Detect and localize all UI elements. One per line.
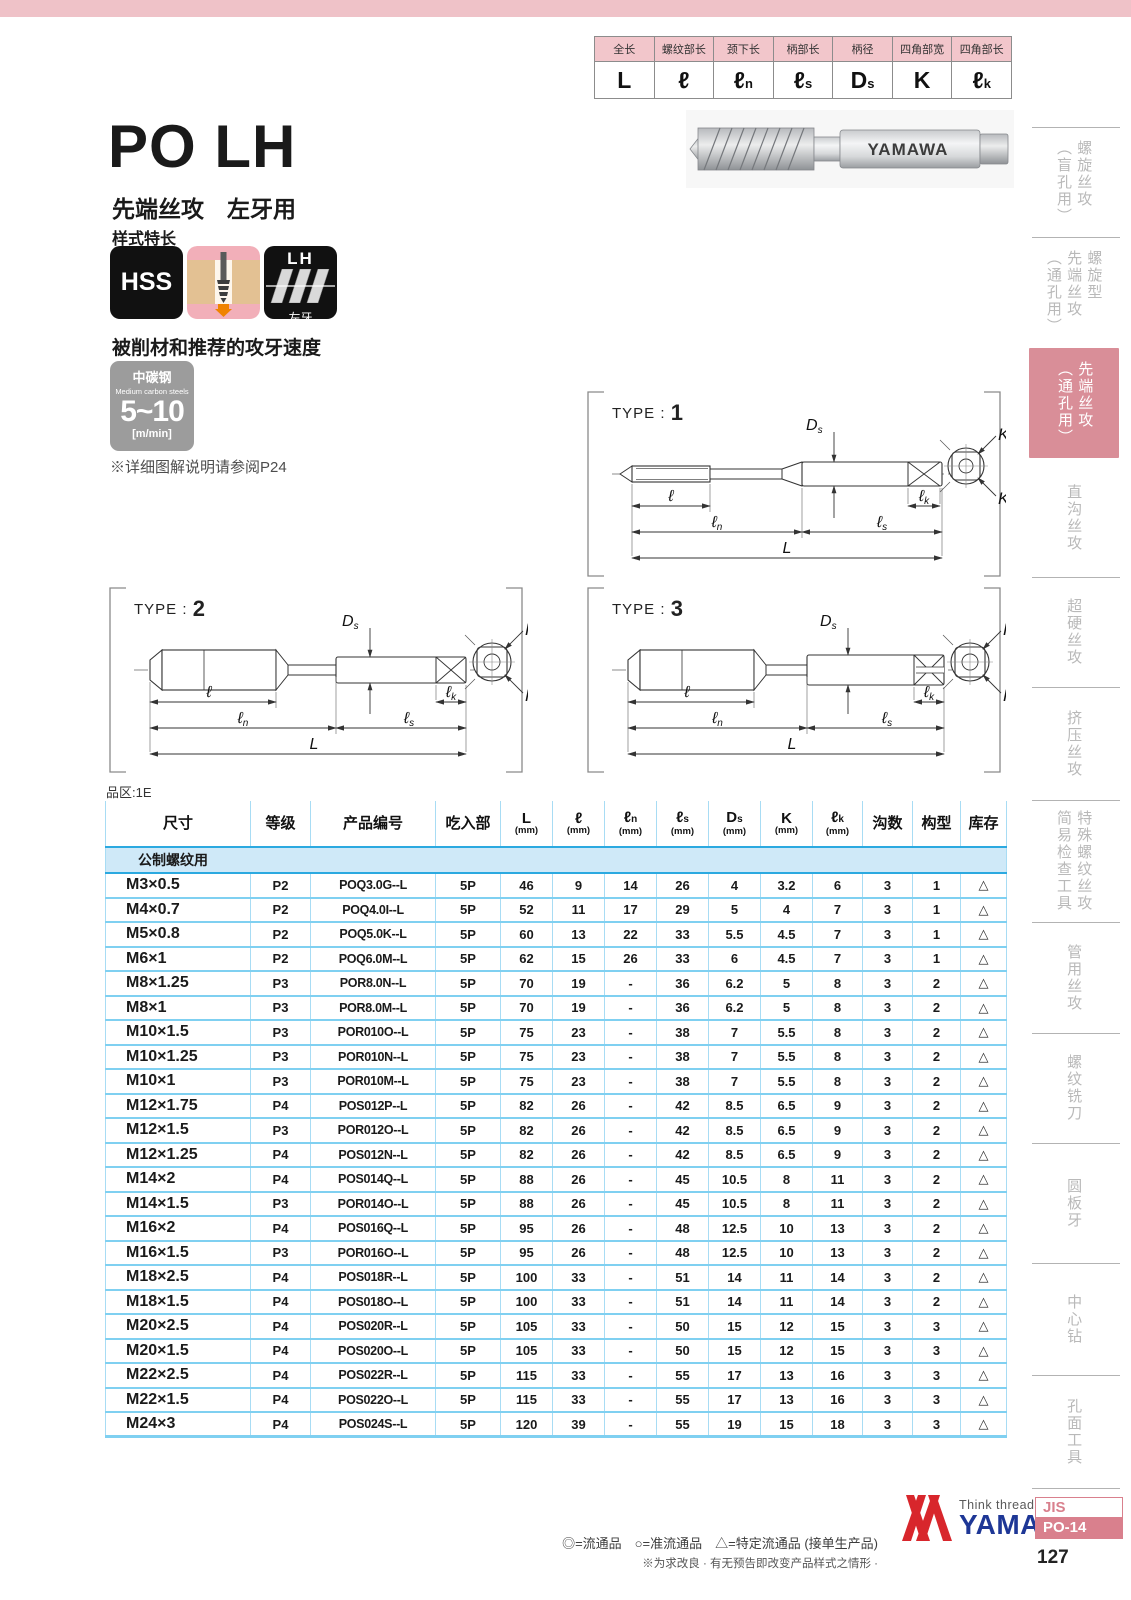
chamfer-cell: 5P: [436, 1290, 501, 1315]
symbol-col-header: 四角部宽: [892, 37, 952, 62]
type-cell: 2: [913, 996, 961, 1021]
column-header: 产品编号: [311, 801, 436, 847]
type-cell: 2: [913, 1069, 961, 1094]
l-cell: 88: [501, 1192, 553, 1217]
table-row: M8×1.25P3POR8.0N--L5P7019-366.25832△: [106, 971, 1007, 996]
product-code-cell: POQ5.0K--L: [311, 922, 436, 947]
table-row: M10×1.5P3POR010O--L5P7523-3875.5832△: [106, 1020, 1007, 1045]
hss-badge-label: HSS: [121, 268, 172, 297]
svg-text:ℓk: ℓk: [923, 684, 935, 703]
chamfer-cell: 5P: [436, 898, 501, 923]
product-code-cell: POS016Q--L: [311, 1216, 436, 1241]
symbol-cell: L: [595, 62, 655, 99]
chamfer-cell: 5P: [436, 1143, 501, 1168]
grade-cell: P2: [251, 898, 311, 923]
shank-len-cell: 48: [657, 1241, 709, 1266]
product-code-cell: POR8.0N--L: [311, 971, 436, 996]
table-row: M3×0.5P2POQ3.0G--L5P469142643.2631△: [106, 873, 1007, 898]
square-len-cell: 7: [813, 922, 863, 947]
column-header: L(mm): [501, 801, 553, 847]
svg-text:ℓk: ℓk: [445, 684, 457, 703]
square-len-cell: 16: [813, 1388, 863, 1413]
symbol-col-header: 全长: [595, 37, 655, 62]
dimension-table: 尺寸等级产品编号吃入部L(mm)ℓ(mm)ℓn(mm)ℓs(mm)Ds(mm)K…: [105, 801, 1007, 1438]
l-cell: 75: [501, 1045, 553, 1070]
neck-len-cell: -: [605, 1118, 657, 1143]
square-len-cell: 9: [813, 1094, 863, 1119]
thread-len-cell: 26: [553, 1143, 605, 1168]
footer-legend: ◎=流通品 ○=准流通品 △=特定流通品 (接单生产品) ※为求改良 · 有无预…: [562, 1533, 878, 1571]
flutes-cell: 3: [863, 873, 913, 898]
square-width-cell: 6.5: [761, 1094, 813, 1119]
sidebar-tab-label: 挤压丝攻: [1063, 710, 1083, 778]
sidebar-tab[interactable]: 圆板牙: [1015, 1143, 1131, 1263]
square-len-cell: 14: [813, 1290, 863, 1315]
stock-cell: △: [961, 1388, 1007, 1413]
type2-diagram: TYPE : 2DsℓℓkℓnℓsLKK: [104, 582, 528, 783]
type-cell: 3: [913, 1314, 961, 1339]
flutes-cell: 3: [863, 1216, 913, 1241]
neck-len-cell: -: [605, 996, 657, 1021]
type1-diagram: TYPE : 1DsℓℓkℓnℓsLKK: [582, 386, 1006, 587]
section-row: 公制螺纹用: [106, 847, 1007, 873]
shank-dia-cell: 6: [709, 947, 761, 972]
product-code-cell: POS014Q--L: [311, 1167, 436, 1192]
zone-label: 品区:1E: [106, 782, 152, 801]
square-width-cell: 13: [761, 1363, 813, 1388]
square-width-cell: 4.5: [761, 947, 813, 972]
square-len-cell: 8: [813, 996, 863, 1021]
shank-len-cell: 42: [657, 1118, 709, 1143]
shank-dia-cell: 12.5: [709, 1216, 761, 1241]
table-row: M18×2.5P4POS018R--L5P10033-5114111432△: [106, 1265, 1007, 1290]
section-label: 公制螺纹用: [106, 847, 1007, 873]
grade-cell: P3: [251, 971, 311, 996]
grade-cell: P3: [251, 1118, 311, 1143]
neck-len-cell: -: [605, 1094, 657, 1119]
type-cell: 2: [913, 971, 961, 996]
size-cell: M10×1.5: [106, 1020, 251, 1045]
sidebar-tab[interactable]: 挤压丝攻: [1015, 687, 1131, 800]
chamfer-cell: 5P: [436, 1020, 501, 1045]
shank-dia-cell: 12.5: [709, 1241, 761, 1266]
shank-len-cell: 38: [657, 1020, 709, 1045]
table-row: M14×2P4POS014Q--L5P8826-4510.581132△: [106, 1167, 1007, 1192]
square-len-cell: 9: [813, 1118, 863, 1143]
flutes-cell: 3: [863, 1241, 913, 1266]
size-cell: M10×1.25: [106, 1045, 251, 1070]
grade-cell: P4: [251, 1363, 311, 1388]
material-name-cn: 中碳钢: [110, 367, 194, 386]
speed-range: 5~10: [110, 396, 194, 428]
neck-len-cell: -: [605, 1265, 657, 1290]
size-cell: M6×1: [106, 947, 251, 972]
sidebar-tab[interactable]: 孔面工具: [1015, 1375, 1131, 1488]
sidebar-tab[interactable]: 先端丝攻（通孔用）: [1029, 348, 1119, 458]
size-cell: M20×1.5: [106, 1339, 251, 1364]
type-cell: 2: [913, 1290, 961, 1315]
chamfer-cell: 5P: [436, 1388, 501, 1413]
grade-cell: P3: [251, 1241, 311, 1266]
grade-cell: P4: [251, 1314, 311, 1339]
table-row: M12×1.5P3POR012O--L5P8226-428.56.5932△: [106, 1118, 1007, 1143]
product-code-cell: POS024S--L: [311, 1412, 436, 1437]
column-header: 库存: [961, 801, 1007, 847]
product-code-cell: POS012P--L: [311, 1094, 436, 1119]
shank-len-cell: 48: [657, 1216, 709, 1241]
yamawa-logo-mark: [901, 1492, 953, 1544]
svg-text:ℓn: ℓn: [711, 514, 723, 533]
sidebar-tab-label: 管用丝攻: [1063, 944, 1083, 1012]
stock-cell: △: [961, 1290, 1007, 1315]
shank-len-cell: 33: [657, 947, 709, 972]
product-code-cell: POS022R--L: [311, 1363, 436, 1388]
sidebar-tab-label: 先端丝攻（通孔用）: [1054, 361, 1095, 446]
product-code-cell: POS012N--L: [311, 1143, 436, 1168]
shank-dia-cell: 17: [709, 1388, 761, 1413]
chamfer-cell: 5P: [436, 922, 501, 947]
symbol-col-header: 柄径: [833, 37, 893, 62]
l-cell: 52: [501, 898, 553, 923]
square-width-cell: 5: [761, 971, 813, 996]
disclaimer-note: ※为求改良 · 有无预告即改变产品样式之情形 ·: [562, 1555, 878, 1571]
neck-len-cell: -: [605, 1216, 657, 1241]
left-hand-badge: LH 左牙: [264, 246, 337, 319]
flutes-cell: 3: [863, 996, 913, 1021]
type-cell: 3: [913, 1412, 961, 1437]
size-cell: M16×1.5: [106, 1241, 251, 1266]
svg-text:K: K: [998, 489, 1006, 508]
chamfer-cell: 5P: [436, 1069, 501, 1094]
sidebar-tab-label: 超硬丝攻: [1063, 598, 1083, 666]
reference-note: ※详细图解说明请参阅P24: [110, 456, 287, 477]
shank-dia-cell: 10.5: [709, 1192, 761, 1217]
symbol-cell: ℓs: [773, 62, 833, 99]
l-cell: 105: [501, 1339, 553, 1364]
neck-len-cell: -: [605, 1314, 657, 1339]
sidebar-tab[interactable]: 管用丝攻: [1015, 922, 1131, 1033]
type-cell: 2: [913, 1118, 961, 1143]
column-header: 尺寸: [106, 801, 251, 847]
symbol-col-header: 四角部长: [952, 37, 1012, 62]
tap-square-end: [980, 134, 1008, 164]
type-cell: 2: [913, 1216, 961, 1241]
thread-len-cell: 26: [553, 1192, 605, 1217]
thread-len-cell: 23: [553, 1020, 605, 1045]
sidebar-tab[interactable]: 超硬丝攻: [1015, 577, 1131, 687]
stock-cell: △: [961, 971, 1007, 996]
sidebar-tab[interactable]: 螺纹铣刀: [1015, 1033, 1131, 1143]
grade-cell: P3: [251, 1045, 311, 1070]
svg-text:TYPE : 1: TYPE : 1: [612, 400, 684, 425]
column-header: ℓs(mm): [657, 801, 709, 847]
neck-len-cell: -: [605, 1143, 657, 1168]
sidebar-divider: [1032, 1488, 1120, 1489]
chamfer-cell: 5P: [436, 1339, 501, 1364]
table-row: M10×1P3POR010M--L5P7523-3875.5832△: [106, 1069, 1007, 1094]
size-cell: M8×1: [106, 996, 251, 1021]
shank-len-cell: 36: [657, 971, 709, 996]
chamfer-cell: 5P: [436, 1241, 501, 1266]
column-header: 等级: [251, 801, 311, 847]
lh-badge-cn-label: 左牙: [264, 309, 337, 326]
shank-len-cell: 33: [657, 922, 709, 947]
left-hand-thread-graphic: [264, 269, 337, 303]
symbol-col-header: 柄部长: [773, 37, 833, 62]
sidebar-tab[interactable]: 螺旋型先端丝攻（通孔用）: [1015, 237, 1131, 348]
grade-cell: P3: [251, 1192, 311, 1217]
shank-dia-cell: 4: [709, 873, 761, 898]
hss-badge: HSS: [110, 246, 183, 319]
symbol-cell: ℓk: [952, 62, 1012, 99]
product-code-cell: POS022O--L: [311, 1388, 436, 1413]
flutes-cell: 3: [863, 947, 913, 972]
sidebar-tab-label: 圆板牙: [1063, 1178, 1083, 1229]
type-cell: 2: [913, 1265, 961, 1290]
grade-cell: P2: [251, 947, 311, 972]
chamfer-cell: 5P: [436, 1216, 501, 1241]
square-len-cell: 7: [813, 898, 863, 923]
flutes-cell: 3: [863, 1314, 913, 1339]
jis-label: JIS: [1036, 1498, 1122, 1517]
square-len-cell: 6: [813, 873, 863, 898]
flutes-cell: 3: [863, 1363, 913, 1388]
speed-unit: [m/min]: [110, 428, 194, 440]
shank-dia-cell: 7: [709, 1045, 761, 1070]
size-cell: M12×1.25: [106, 1143, 251, 1168]
size-cell: M14×1.5: [106, 1192, 251, 1217]
type-cell: 2: [913, 1143, 961, 1168]
shank-len-cell: 38: [657, 1069, 709, 1094]
symbol-col-header: 螺纹部长: [654, 37, 714, 62]
type-cell: 2: [913, 1045, 961, 1070]
grade-cell: P4: [251, 1388, 311, 1413]
symbol-reference-table: 全长螺纹部长颈下长柄部长柄径四角部宽四角部长 LℓℓnℓsDsKℓk: [594, 36, 1012, 99]
svg-text:ℓs: ℓs: [403, 710, 414, 729]
svg-text:ℓ: ℓ: [667, 488, 674, 505]
table-row: M22×2.5P4POS022R--L5P11533-5517131633△: [106, 1363, 1007, 1388]
product-code-cell: POS020R--L: [311, 1314, 436, 1339]
top-accent-bar: [0, 0, 1131, 17]
product-photo: YAMAWA: [686, 110, 1014, 193]
svg-text:ℓk: ℓk: [918, 488, 930, 507]
page-subtitle: 先端丝攻 左牙用: [112, 190, 296, 224]
sidebar-tab[interactable]: 直沟丝攻: [1015, 458, 1131, 577]
svg-text:ℓ: ℓ: [683, 684, 690, 701]
neck-len-cell: 22: [605, 922, 657, 947]
square-len-cell: 13: [813, 1241, 863, 1266]
lh-badge-label: LH: [264, 249, 337, 269]
shank-dia-cell: 14: [709, 1265, 761, 1290]
column-header: 吃入部: [436, 801, 501, 847]
svg-text:ℓn: ℓn: [237, 710, 249, 729]
type-cell: 1: [913, 947, 961, 972]
sidebar-tab[interactable]: 螺旋丝攻（盲孔用）: [1015, 127, 1131, 237]
thread-len-cell: 33: [553, 1363, 605, 1388]
square-width-cell: 11: [761, 1290, 813, 1315]
stock-cell: △: [961, 873, 1007, 898]
stock-cell: △: [961, 1339, 1007, 1364]
grade-cell: P4: [251, 1265, 311, 1290]
square-width-cell: 5.5: [761, 1069, 813, 1094]
column-header: ℓk(mm): [813, 801, 863, 847]
square-len-cell: 15: [813, 1314, 863, 1339]
size-cell: M24×3: [106, 1412, 251, 1437]
square-width-cell: 5: [761, 996, 813, 1021]
sidebar-tab-label: 螺旋型先端丝攻（通孔用）: [1043, 250, 1104, 335]
neck-len-cell: -: [605, 971, 657, 996]
sidebar-tab[interactable]: 特殊螺纹丝攻简易检查工具: [1015, 800, 1131, 922]
type-cell: 1: [913, 922, 961, 947]
flutes-cell: 3: [863, 922, 913, 947]
l-cell: 70: [501, 971, 553, 996]
chamfer-cell: 5P: [436, 996, 501, 1021]
jis-doc-code-box: JIS PO-14: [1035, 1497, 1123, 1539]
stock-cell: △: [961, 1167, 1007, 1192]
table-row: M6×1P2POQ6.0M--L5P6215263364.5731△: [106, 947, 1007, 972]
catalog-page: 全长螺纹部长颈下长柄部长柄径四角部宽四角部长 LℓℓnℓsDsKℓk: [0, 0, 1131, 1600]
square-len-cell: 11: [813, 1192, 863, 1217]
shank-len-cell: 50: [657, 1314, 709, 1339]
stock-cell: △: [961, 996, 1007, 1021]
chamfer-cell: 5P: [436, 1192, 501, 1217]
type-cell: 3: [913, 1339, 961, 1364]
size-cell: M3×0.5: [106, 873, 251, 898]
shank-len-cell: 55: [657, 1363, 709, 1388]
thread-len-cell: 39: [553, 1412, 605, 1437]
type-cell: 3: [913, 1363, 961, 1388]
column-header: K(mm): [761, 801, 813, 847]
neck-len-cell: 17: [605, 898, 657, 923]
product-code-cell: POS018O--L: [311, 1290, 436, 1315]
flutes-cell: 3: [863, 898, 913, 923]
stock-cell: △: [961, 1143, 1007, 1168]
type-cell: 2: [913, 1020, 961, 1045]
stock-cell: △: [961, 1045, 1007, 1070]
square-width-cell: 3.2: [761, 873, 813, 898]
sidebar-tab-label: 螺纹铣刀: [1063, 1054, 1083, 1122]
neck-len-cell: -: [605, 1363, 657, 1388]
column-header: Ds(mm): [709, 801, 761, 847]
l-cell: 105: [501, 1314, 553, 1339]
neck-len-cell: -: [605, 1045, 657, 1070]
l-cell: 115: [501, 1388, 553, 1413]
sidebar-tab[interactable]: 中心钻: [1015, 1263, 1131, 1375]
square-width-cell: 8: [761, 1192, 813, 1217]
flutes-cell: 3: [863, 1069, 913, 1094]
product-code-cell: POR010N--L: [311, 1045, 436, 1070]
square-width-cell: 11: [761, 1265, 813, 1290]
shank-len-cell: 55: [657, 1388, 709, 1413]
product-code-cell: POR8.0M--L: [311, 996, 436, 1021]
neck-len-cell: -: [605, 1412, 657, 1437]
type-cell: 1: [913, 898, 961, 923]
thread-len-cell: 33: [553, 1339, 605, 1364]
table-row: M4×0.7P2POQ4.0I--L5P5211172954731△: [106, 898, 1007, 923]
table-row: M10×1.25P3POR010N--L5P7523-3875.5832△: [106, 1045, 1007, 1070]
square-len-cell: 8: [813, 1069, 863, 1094]
table-row: M12×1.75P4POS012P--L5P8226-428.56.5932△: [106, 1094, 1007, 1119]
square-width-cell: 6.5: [761, 1118, 813, 1143]
thread-len-cell: 33: [553, 1290, 605, 1315]
neck-len-cell: -: [605, 1192, 657, 1217]
flutes-cell: 3: [863, 1045, 913, 1070]
table-row: M14×1.5P3POR014O--L5P8826-4510.581132△: [106, 1192, 1007, 1217]
sidebar-tab-label: 直沟丝攻: [1063, 484, 1083, 552]
product-code-cell: POS020O--L: [311, 1339, 436, 1364]
l-cell: 95: [501, 1241, 553, 1266]
l-cell: 70: [501, 996, 553, 1021]
square-len-cell: 8: [813, 1045, 863, 1070]
stock-cell: △: [961, 947, 1007, 972]
doc-code: PO-14: [1036, 1517, 1122, 1538]
shank-len-cell: 51: [657, 1265, 709, 1290]
shank-len-cell: 29: [657, 898, 709, 923]
flutes-cell: 3: [863, 971, 913, 996]
grade-cell: P2: [251, 922, 311, 947]
square-len-cell: 18: [813, 1412, 863, 1437]
flutes-cell: 3: [863, 1167, 913, 1192]
size-cell: M14×2: [106, 1167, 251, 1192]
table-row: M8×1P3POR8.0M--L5P7019-366.25832△: [106, 996, 1007, 1021]
shank-dia-cell: 17: [709, 1363, 761, 1388]
l-cell: 62: [501, 947, 553, 972]
grade-cell: P2: [251, 873, 311, 898]
shank-dia-cell: 15: [709, 1339, 761, 1364]
flutes-cell: 3: [863, 1143, 913, 1168]
svg-text:ℓs: ℓs: [881, 710, 892, 729]
neck-len-cell: -: [605, 1020, 657, 1045]
tap-neck: [814, 137, 840, 161]
type-cell: 2: [913, 1241, 961, 1266]
square-len-cell: 15: [813, 1339, 863, 1364]
flutes-cell: 3: [863, 1118, 913, 1143]
neck-len-cell: -: [605, 1290, 657, 1315]
size-cell: M12×1.5: [106, 1118, 251, 1143]
product-code-cell: POR012O--L: [311, 1118, 436, 1143]
thread-len-cell: 26: [553, 1216, 605, 1241]
svg-text:ℓs: ℓs: [876, 514, 887, 533]
l-cell: 82: [501, 1143, 553, 1168]
svg-text:L: L: [788, 736, 797, 753]
thread-len-cell: 26: [553, 1094, 605, 1119]
symbol-cell: ℓn: [714, 62, 774, 99]
speed-heading: 被削材和推荐的攻牙速度: [112, 333, 321, 360]
shank-dia-cell: 6.2: [709, 996, 761, 1021]
table-row: M16×1.5P3POR016O--L5P9526-4812.5101332△: [106, 1241, 1007, 1266]
flutes-cell: 3: [863, 1265, 913, 1290]
table-row: M22×1.5P4POS022O--L5P11533-5517131633△: [106, 1388, 1007, 1413]
product-code-cell: POS018R--L: [311, 1265, 436, 1290]
stock-cell: △: [961, 1069, 1007, 1094]
shank-dia-cell: 8.5: [709, 1094, 761, 1119]
sidebar-tab-label: 特殊螺纹丝攻简易检查工具: [1053, 810, 1094, 912]
product-code-cell: POR014O--L: [311, 1192, 436, 1217]
column-header: ℓn(mm): [605, 801, 657, 847]
type-cell: 2: [913, 1094, 961, 1119]
symbol-cell: K: [892, 62, 952, 99]
thread-len-cell: 13: [553, 922, 605, 947]
stock-cell: △: [961, 922, 1007, 947]
page-title: PO LH: [108, 112, 296, 181]
flutes-cell: 3: [863, 1094, 913, 1119]
table-header-row: 尺寸等级产品编号吃入部L(mm)ℓ(mm)ℓn(mm)ℓs(mm)Ds(mm)K…: [106, 801, 1007, 847]
l-cell: 95: [501, 1216, 553, 1241]
l-cell: 46: [501, 873, 553, 898]
shank-dia-cell: 5: [709, 898, 761, 923]
l-cell: 88: [501, 1167, 553, 1192]
square-width-cell: 13: [761, 1388, 813, 1413]
